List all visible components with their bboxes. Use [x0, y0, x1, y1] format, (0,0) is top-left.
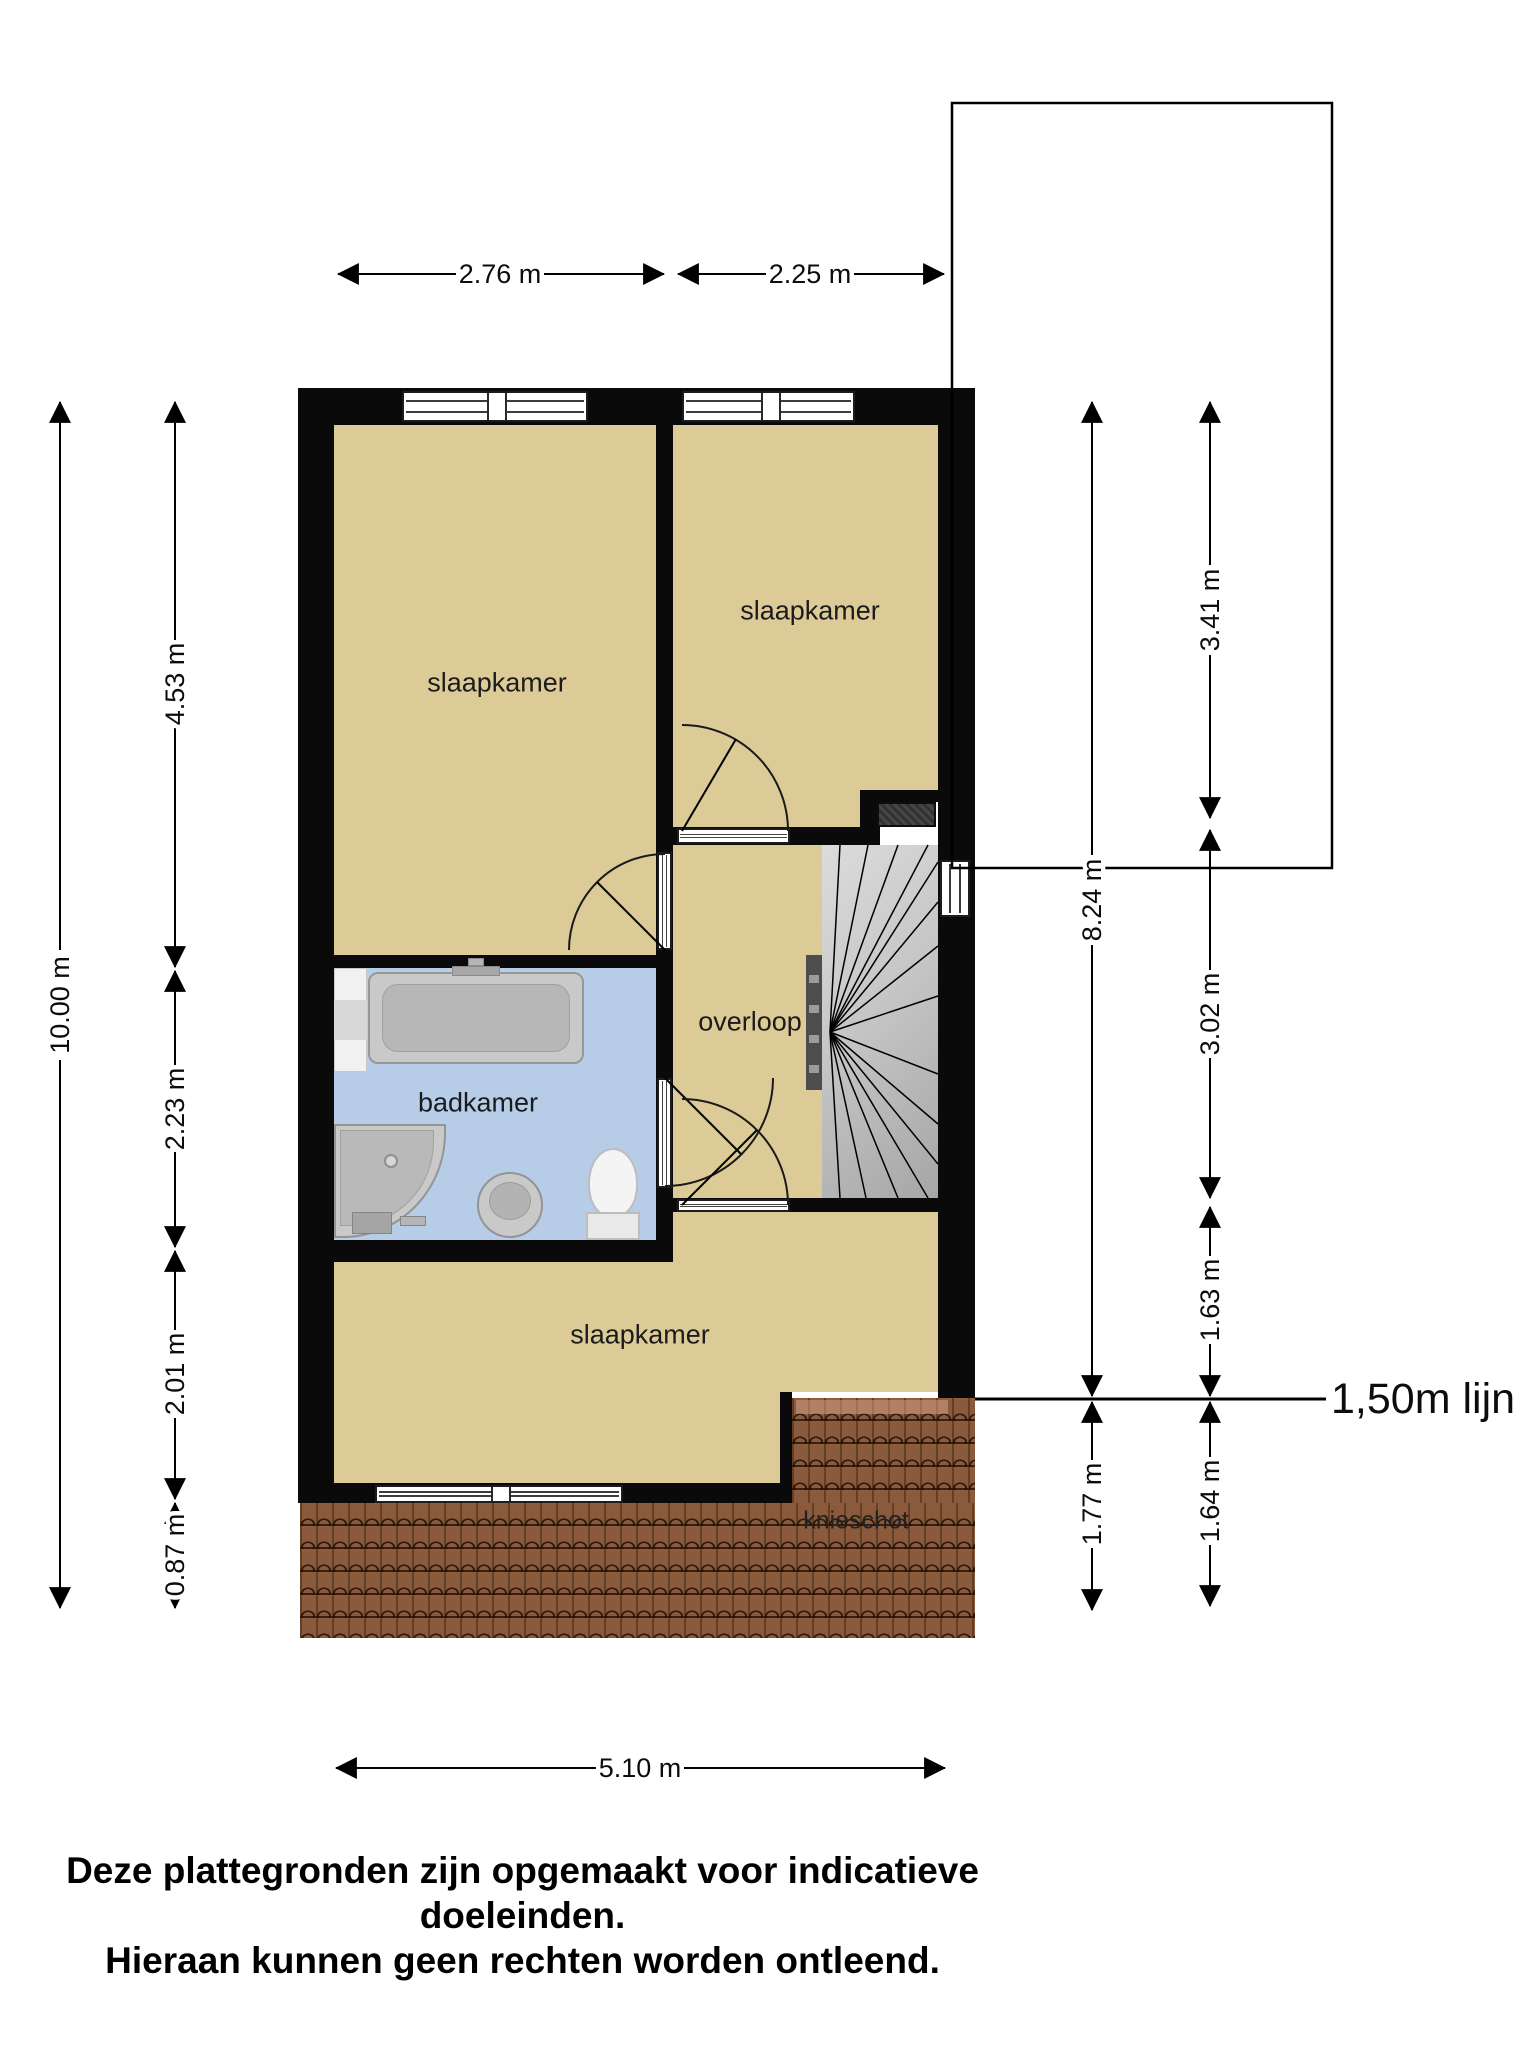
stairs-icon — [822, 845, 938, 1198]
room-label-bedroom-right: slaapkamer — [740, 596, 880, 627]
roof-ridge-highlight — [796, 1400, 948, 1414]
door-sill-lines — [662, 855, 666, 947]
wall-outer-top — [298, 388, 972, 425]
door-icon — [657, 1078, 672, 1188]
bathtub-faucet-handle — [468, 958, 484, 966]
bedroom-right-floor-lower — [673, 790, 877, 827]
window-icon — [375, 1485, 623, 1503]
dim-bottom: 5.10 m — [599, 1753, 682, 1783]
footprint-outline — [952, 103, 1332, 868]
wall-chimney-top — [860, 790, 938, 802]
wall-outer-left — [298, 388, 334, 1503]
disclaimer-text: Deze plattegronden zijn opgemaakt voor i… — [0, 1848, 1045, 1983]
dim-top-left: 2.76 m — [459, 259, 542, 289]
railing-rung — [809, 975, 819, 983]
room-label-bathroom: badkamer — [418, 1088, 538, 1119]
window-glazing — [949, 864, 962, 913]
dim-left-2: 2.23 m — [160, 1068, 190, 1151]
dim-left-4: 0.87 m — [160, 1514, 190, 1597]
dim-right-2: 3.02 m — [1195, 973, 1225, 1056]
bathtub-basin — [382, 984, 570, 1052]
door-sill-lines — [680, 834, 787, 839]
toilet-tank — [586, 1212, 640, 1240]
window-icon — [402, 391, 588, 422]
chimney-icon — [877, 802, 936, 827]
toilet-icon — [588, 1148, 638, 1218]
bathroom-cabinet-shelf — [334, 1000, 367, 1040]
shower-faucet-icon — [352, 1212, 392, 1234]
bidet-bowl — [489, 1182, 531, 1220]
dim-top-right: 2.25 m — [769, 259, 852, 289]
dim-right-4: 1.64 m — [1195, 1460, 1225, 1543]
railing-rung — [809, 1035, 819, 1043]
window-icon — [940, 860, 970, 917]
dim-right-outer-2: 1.77 m — [1077, 1463, 1107, 1546]
railing-rung — [809, 1065, 819, 1073]
door-sill-lines — [662, 1081, 666, 1185]
door-icon — [677, 1199, 790, 1212]
bedroom-bottom-floor-right — [673, 1212, 938, 1392]
dim-left-3: 2.01 m — [160, 1333, 190, 1416]
railing-rung — [809, 1005, 819, 1013]
roof-strip-right — [792, 1398, 975, 1506]
door-sill-lines — [680, 1204, 787, 1208]
disclaimer-line-2: Hieraan kunnen geen rechten worden ontle… — [0, 1938, 1045, 1983]
shower-drain — [384, 1154, 398, 1168]
dim-total-height: 10.00 m — [45, 956, 75, 1054]
door-icon — [657, 852, 672, 950]
dim-right-3: 1.63 m — [1195, 1259, 1225, 1342]
bathtub-faucet-icon — [452, 966, 500, 976]
door-icon — [677, 828, 790, 844]
window-icon — [682, 391, 855, 422]
window-mullion — [491, 1487, 511, 1501]
wall-bathroom-top — [334, 955, 673, 968]
room-label-bedroom-left: slaapkamer — [427, 668, 567, 699]
dim-left-1: 4.53 m — [160, 643, 190, 726]
floorplan-page: slaapkamer slaapkamer badkamer overloop … — [0, 0, 1536, 2048]
dim-right-1: 3.41 m — [1195, 569, 1225, 652]
wall-kneewall-step — [780, 1392, 792, 1503]
wall-bathroom-bottom — [334, 1240, 673, 1262]
window-mullion — [487, 393, 507, 420]
shower-tap — [400, 1216, 426, 1226]
window-mullion — [761, 393, 781, 420]
room-label-landing: overloop — [698, 1007, 802, 1038]
room-label-bedroom-bottom: slaapkamer — [570, 1320, 710, 1351]
disclaimer-line-1: Deze plattegronden zijn opgemaakt voor i… — [0, 1848, 1045, 1938]
height-line-label: 1,50m lijn — [1331, 1375, 1515, 1423]
room-label-kneewall: knieschot — [803, 1507, 909, 1536]
dim-right-outer-1: 8.24 m — [1077, 859, 1107, 942]
